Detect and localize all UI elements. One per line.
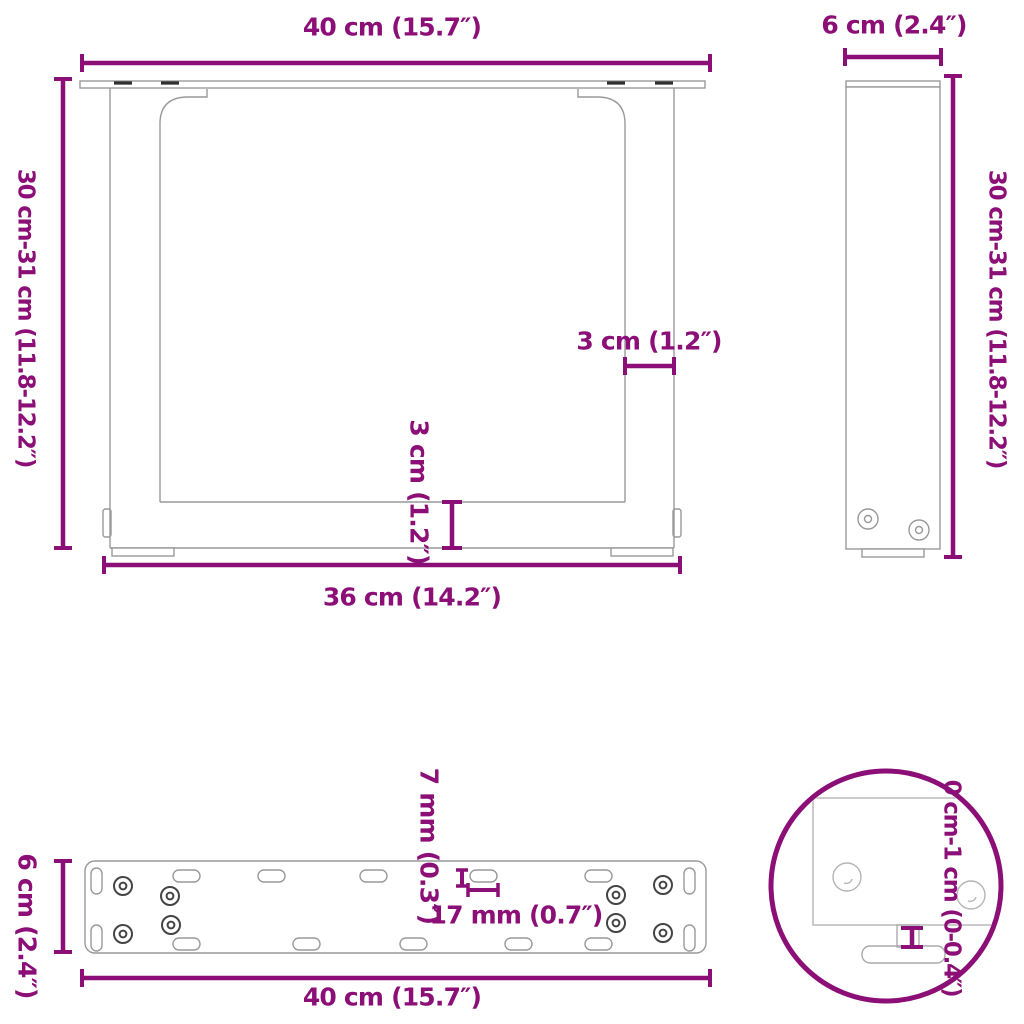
dimension-diagram: 40 cm (15.7″) 30 cm-31 cm (11.8-12.2″) 3… bbox=[0, 0, 1024, 1024]
dim-label-front-leg-width: 3 cm (1.2″) bbox=[576, 329, 721, 354]
side-view-drawing bbox=[846, 81, 940, 557]
dim-label-side-depth-top: 6 cm (2.4″) bbox=[821, 13, 966, 38]
dim-label-plate-width-bottom: 40 cm (15.7″) bbox=[303, 985, 481, 1010]
technical-drawing bbox=[0, 0, 1024, 1024]
dim-label-front-width-bottom: 36 cm (14.2″) bbox=[323, 585, 501, 610]
front-view-dimension-lines bbox=[54, 54, 710, 574]
plate-top-view-drawing bbox=[85, 861, 706, 953]
dim-label-front-height-left: 30 cm-31 cm (11.8-12.2″) bbox=[14, 169, 37, 467]
dim-label-plate-slot-length: 17 mm (0.7″) bbox=[429, 903, 602, 928]
dim-label-detail-adjustable-range: 0 cm-1 cm (0-0.4″) bbox=[940, 780, 963, 997]
dim-label-front-width-top: 40 cm (15.7″) bbox=[303, 15, 481, 40]
dim-label-side-height-right: 30 cm-31 cm (11.8-12.2″) bbox=[985, 170, 1008, 468]
dim-label-front-bar-height: 3 cm (1.2″) bbox=[407, 419, 432, 564]
front-view-drawing bbox=[80, 81, 705, 556]
dim-label-plate-depth-left: 6 cm (2.4″) bbox=[15, 853, 40, 998]
detail-circle-outline bbox=[771, 771, 1001, 1001]
detail-view-drawing bbox=[771, 771, 1001, 1001]
